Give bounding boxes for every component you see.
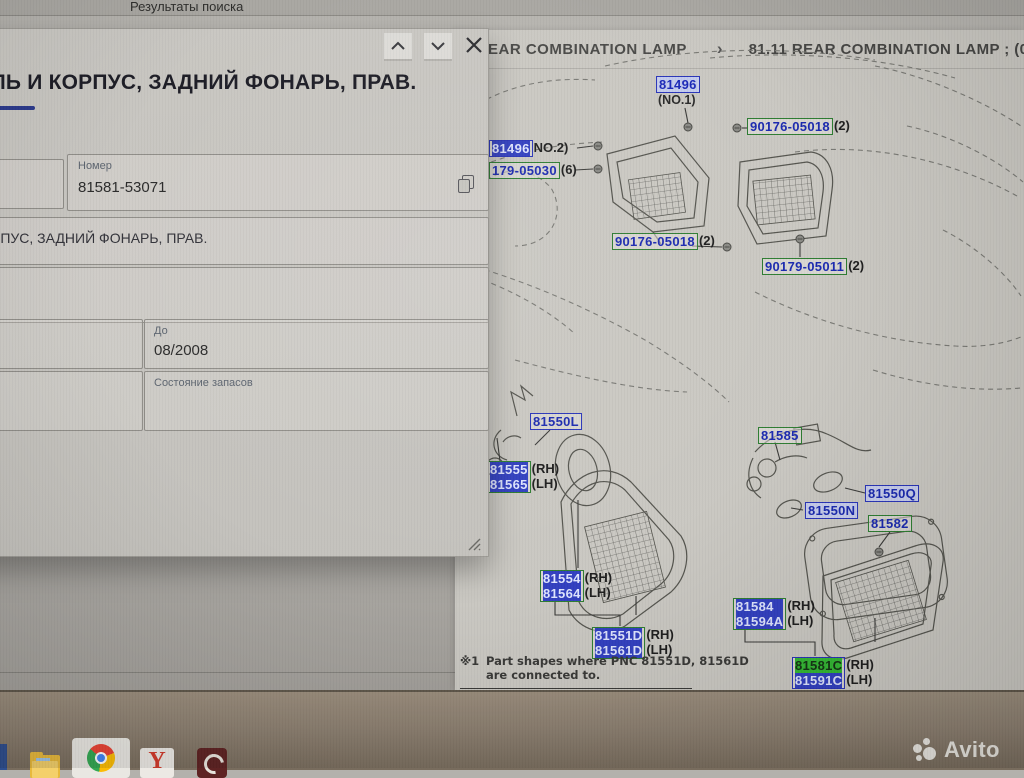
part-label-81550L[interactable]: 81550L: [530, 413, 582, 430]
part-labels-layer: 81496(NO.1)90176-05018(2)81496NO.2)179-0…: [455, 30, 1024, 690]
part-label-81550Q[interactable]: 81550Q: [865, 485, 919, 502]
dark-red-app-icon[interactable]: [197, 748, 227, 778]
footnote-underline: [460, 688, 692, 689]
diagram-footnote: ※1 Part shapes where PNC 81551D, 81561D …: [460, 654, 749, 682]
yandex-browser-icon[interactable]: Y: [140, 748, 174, 778]
chrome-icon[interactable]: [72, 738, 130, 778]
copy-icon[interactable]: [457, 175, 475, 193]
part-label-81581C-81591C[interactable]: 81581C81591C(RH)(LH): [792, 657, 874, 689]
partial-field-left[interactable]: [0, 159, 64, 209]
part-label-90179-05011[interactable]: 90179-05011(2): [762, 258, 864, 275]
part-label-81584-81594A[interactable]: 8158481594A(RH)(LH): [733, 598, 815, 630]
title-accent-bar: [0, 106, 35, 110]
file-explorer-icon[interactable]: [30, 752, 60, 778]
dialog-title: ЛЬ И КОРПУС, ЗАДНИЙ ФОНАРЬ, ПРАВ.: [0, 71, 551, 95]
close-icon[interactable]: [460, 31, 488, 59]
partial-field-left-3[interactable]: [0, 371, 143, 431]
avito-dots-logo: [912, 737, 938, 763]
footnote-line2: are connected to.: [486, 668, 600, 682]
parts-catalog-panel: EAR COMBINATION LAMP › 81.11 REAR COMBIN…: [455, 30, 1024, 690]
until-field-value[interactable]: 08/2008: [154, 342, 208, 359]
resize-handle-icon[interactable]: [465, 535, 483, 553]
until-field-label: До: [154, 325, 168, 337]
pinned-app-partial-icon[interactable]: [0, 744, 7, 770]
part-details-dialog: ЛЬ И КОРПУС, ЗАДНИЙ ФОНАРЬ, ПРАВ. Номер …: [0, 28, 489, 557]
part-label-81496-no1[interactable]: 81496(NO.1): [656, 76, 700, 108]
chevron-down-icon[interactable]: [424, 33, 452, 61]
stock-field-label: Состояние запасов: [154, 377, 253, 389]
chevron-up-icon[interactable]: [384, 33, 412, 61]
part-label-90176-05018-a[interactable]: 90176-05018(2): [747, 118, 850, 135]
part-label-81550N[interactable]: 81550N: [805, 502, 858, 519]
footnote-marker: ※1: [460, 654, 486, 668]
partial-field-left-2[interactable]: [0, 319, 143, 369]
part-label-90176-05018-b[interactable]: 90176-05018(2): [612, 233, 715, 250]
description-text: РПУС, ЗАДНИЙ ФОНАРЬ, ПРАВ.: [0, 230, 207, 246]
number-field-label: Номер: [78, 160, 112, 172]
avito-watermark: Avito: [912, 737, 1000, 763]
avito-watermark-text: Avito: [944, 737, 1000, 763]
part-label-81585[interactable]: 81585: [758, 427, 802, 444]
part-label-81554-81564[interactable]: 8155481564(RH)(LH): [540, 570, 612, 602]
footnote-line1: Part shapes where PNC 81551D, 81561D: [486, 654, 749, 668]
screen-edge-line: [0, 672, 455, 673]
part-label-81555-81565[interactable]: 8155581565(RH)(LH): [487, 461, 559, 493]
part-label-179-05030[interactable]: 179-05030(6): [489, 162, 577, 179]
taskbar: Y: [0, 690, 1024, 770]
part-label-81582[interactable]: 81582: [868, 515, 912, 532]
empty-field-row[interactable]: [0, 267, 489, 323]
number-field-value[interactable]: 81581-53071: [78, 179, 166, 196]
tab-search-results[interactable]: Результаты поиска: [130, 0, 243, 14]
part-label-81496-no2[interactable]: 81496NO.2): [489, 140, 568, 157]
